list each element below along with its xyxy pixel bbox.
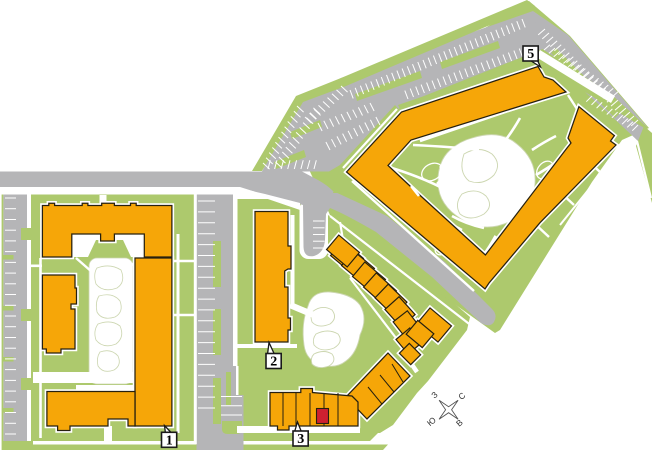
svg-text:3: 3 — [297, 432, 304, 447]
svg-text:2: 2 — [270, 355, 277, 370]
svg-text:5: 5 — [527, 47, 534, 62]
svg-text:1: 1 — [166, 434, 173, 449]
